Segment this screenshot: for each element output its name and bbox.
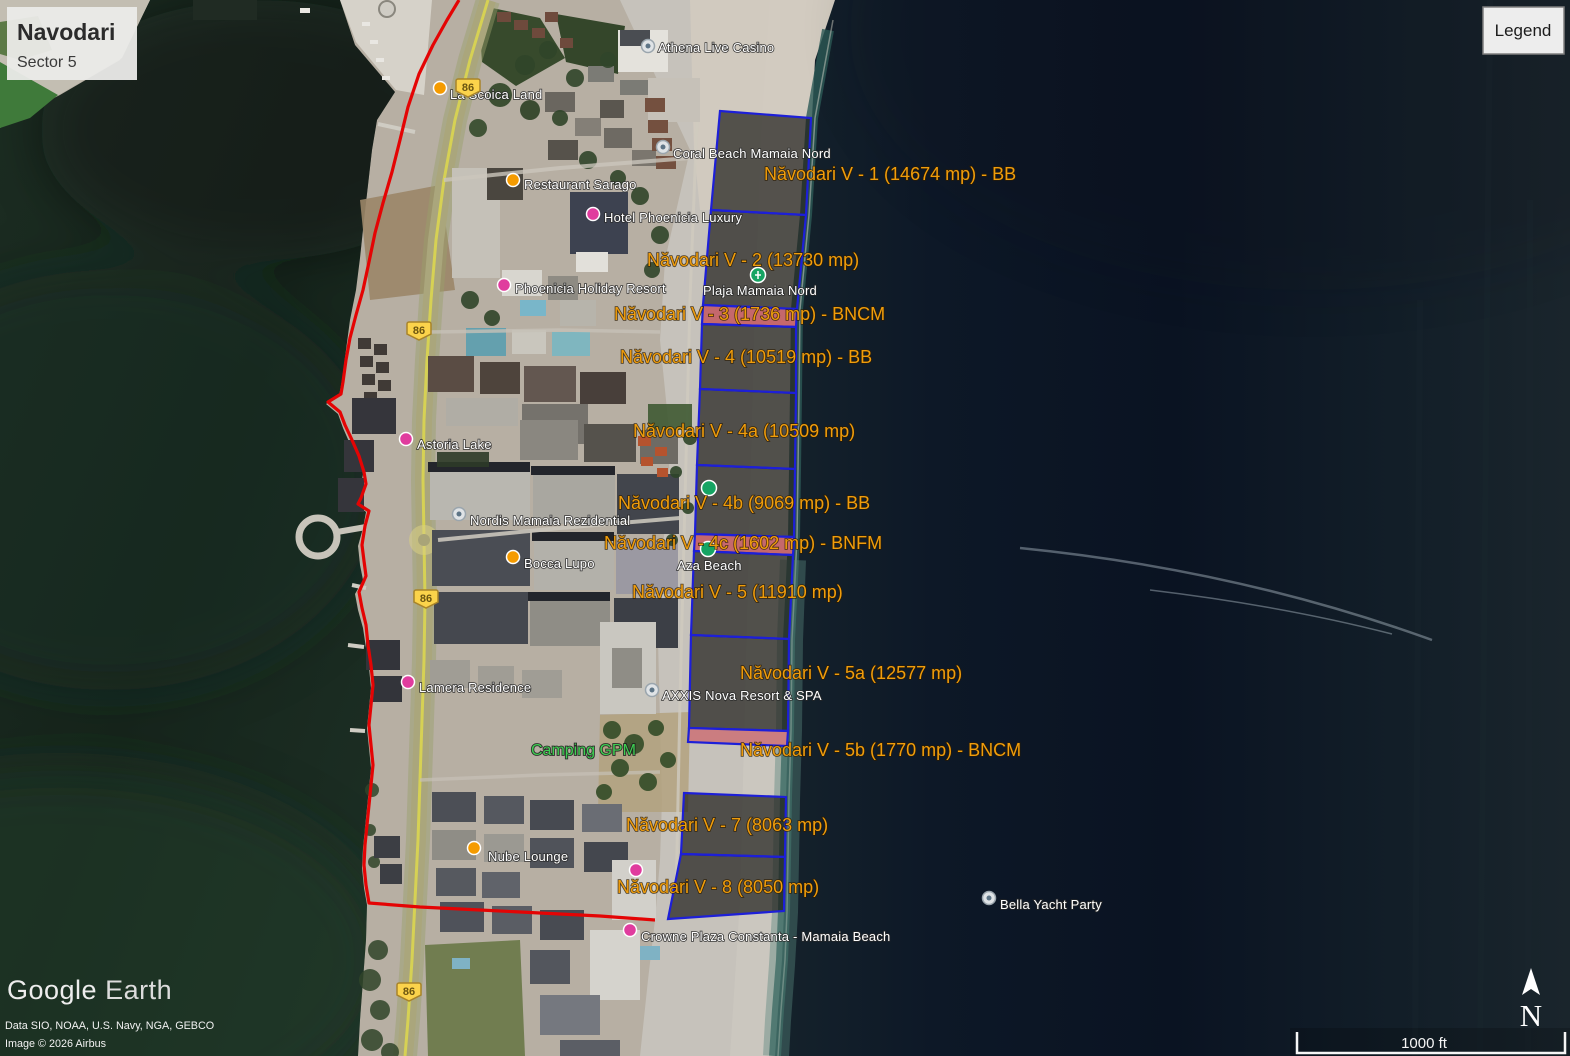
svg-text:1000 ft: 1000 ft: [1401, 1035, 1448, 1052]
svg-text:Lamera Residence: Lamera Residence: [419, 680, 531, 695]
svg-text:Năvodari V - 8 (8050 mp): Năvodari V - 8 (8050 mp): [617, 877, 819, 897]
svg-text:Năvodari V - 4a (10509 mp): Năvodari V - 4a (10509 mp): [633, 421, 855, 441]
svg-text:Năvodari V - 5 (11910 mp): Năvodari V - 5 (11910 mp): [632, 582, 843, 602]
svg-text:Camping GPM: Camping GPM: [531, 742, 636, 759]
svg-text:Astoria Lake: Astoria Lake: [417, 437, 492, 452]
svg-text:Legend: Legend: [1495, 21, 1552, 40]
svg-text:Bella Yacht Party: Bella Yacht Party: [1000, 897, 1102, 912]
svg-text:Google Earth: Google Earth: [7, 975, 172, 1005]
svg-text:Năvodari V - 4b (9069 mp) - BB: Năvodari V - 4b (9069 mp) - BB: [618, 493, 870, 513]
svg-text:Crowne Plaza Constanta - Mamai: Crowne Plaza Constanta - Mamaia Beach: [641, 929, 890, 944]
svg-text:Aza Beach: Aza Beach: [677, 558, 742, 573]
svg-text:Bocca Lupo: Bocca Lupo: [524, 556, 595, 571]
svg-text:Năvodari V - 5b (1770 mp) - BN: Năvodari V - 5b (1770 mp) - BNCM: [740, 740, 1021, 760]
svg-text:Plaja Mamaia Nord: Plaja Mamaia Nord: [703, 283, 817, 298]
svg-text:Sector 5: Sector 5: [17, 54, 77, 71]
svg-text:86: 86: [413, 325, 425, 337]
svg-text:Năvodari V - 1 (14674 mp) - BB: Năvodari V - 1 (14674 mp) - BB: [764, 164, 1016, 184]
svg-text:Image © 2026 Airbus: Image © 2026 Airbus: [5, 1038, 107, 1050]
svg-text:Năvodari V - 3 (1736 mp) - BNC: Năvodari V - 3 (1736 mp) - BNCM: [614, 304, 885, 324]
svg-text:Restaurant Sarago: Restaurant Sarago: [524, 177, 637, 192]
svg-text:Năvodari V - 2 (13730 mp): Năvodari V - 2 (13730 mp): [647, 250, 859, 270]
svg-text:86: 86: [420, 593, 432, 605]
svg-text:N: N: [1520, 998, 1542, 1033]
svg-text:Nordis Mamaia Rezidential: Nordis Mamaia Rezidential: [470, 513, 630, 528]
svg-text:86: 86: [403, 986, 415, 998]
svg-text:Hotel Phoenicia Luxury: Hotel Phoenicia Luxury: [604, 210, 742, 225]
svg-text:AXXIS Nova Resort & SPA: AXXIS Nova Resort & SPA: [662, 688, 822, 703]
svg-text:Athena Live Casino: Athena Live Casino: [658, 40, 774, 55]
svg-text:Navodari: Navodari: [17, 19, 115, 45]
svg-text:Năvodari V - 4 (10519 mp) - BB: Năvodari V - 4 (10519 mp) - BB: [620, 347, 872, 367]
svg-text:Data SIO, NOAA, U.S. Navy, NGA: Data SIO, NOAA, U.S. Navy, NGA, GEBCO: [5, 1020, 214, 1032]
svg-text:Phoenicia Holiday Resort: Phoenicia Holiday Resort: [515, 281, 666, 296]
svg-text:Năvodari V - 4c (1602 mp) - BN: Năvodari V - 4c (1602 mp) - BNFM: [604, 533, 882, 553]
svg-text:Năvodari V - 5a (12577 mp): Năvodari V - 5a (12577 mp): [740, 663, 962, 683]
svg-text:Năvodari V - 7 (8063 mp): Năvodari V - 7 (8063 mp): [626, 815, 828, 835]
svg-text:Nube Lounge: Nube Lounge: [488, 849, 568, 864]
svg-text:86: 86: [462, 82, 474, 94]
svg-text:Coral Beach Mamaia Nord: Coral Beach Mamaia Nord: [673, 146, 831, 161]
